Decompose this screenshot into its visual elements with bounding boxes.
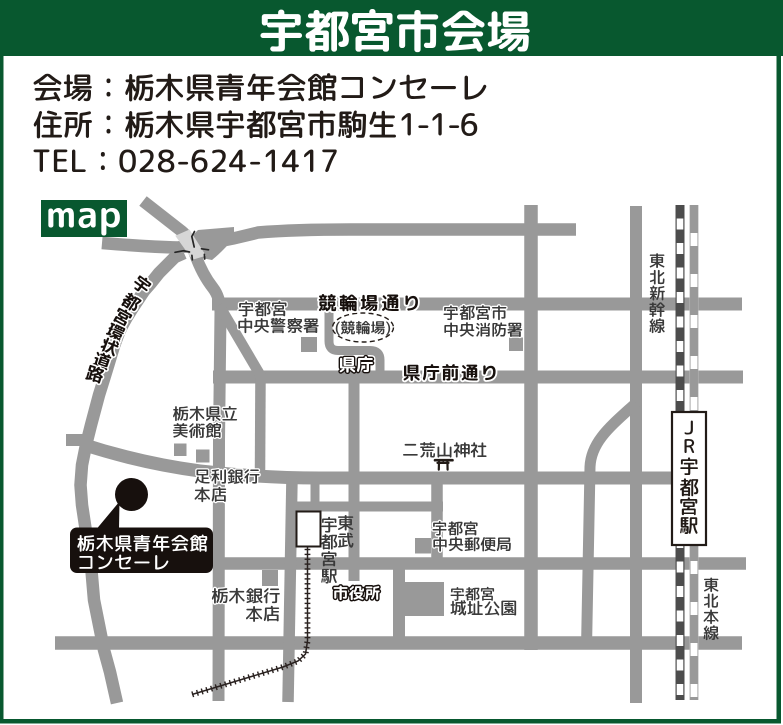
svg-text:宇都宮市会場: 宇都宮市会場: [258, 0, 531, 63]
svg-text:中央郵便局: 中央郵便局: [432, 534, 512, 556]
svg-text:城址公園: 城址公園: [450, 597, 517, 620]
svg-text:map: map: [46, 188, 122, 240]
svg-text:競輪場通り: 競輪場通り: [318, 290, 424, 316]
svg-text:美術館: 美術館: [172, 420, 222, 443]
svg-text:県庁前通り: 県庁前通り: [403, 360, 500, 385]
svg-text:市役所: 市役所: [333, 582, 381, 604]
svg-text:本店: 本店: [245, 601, 280, 626]
svg-text:コンセーレ: コンセーレ: [77, 549, 171, 575]
svg-text:中央消防署: 中央消防署: [443, 320, 523, 342]
svg-text:中央警察署: 中央警察署: [237, 315, 320, 338]
svg-text:TEL：028-624-1417: TEL：028-624-1417: [32, 139, 339, 182]
svg-text:線: 線: [649, 315, 666, 338]
svg-text:武: 武: [337, 530, 354, 553]
svg-text:線: 線: [703, 623, 719, 645]
svg-text:二荒山神社: 二荒山神社: [402, 439, 487, 462]
svg-text:駅: 駅: [321, 565, 338, 588]
svg-text:駅: 駅: [679, 513, 699, 540]
svg-text:県庁: 県庁: [339, 352, 374, 377]
svg-text:本店: 本店: [194, 484, 227, 507]
svg-text:(競輪場): (競輪場): [335, 317, 391, 338]
